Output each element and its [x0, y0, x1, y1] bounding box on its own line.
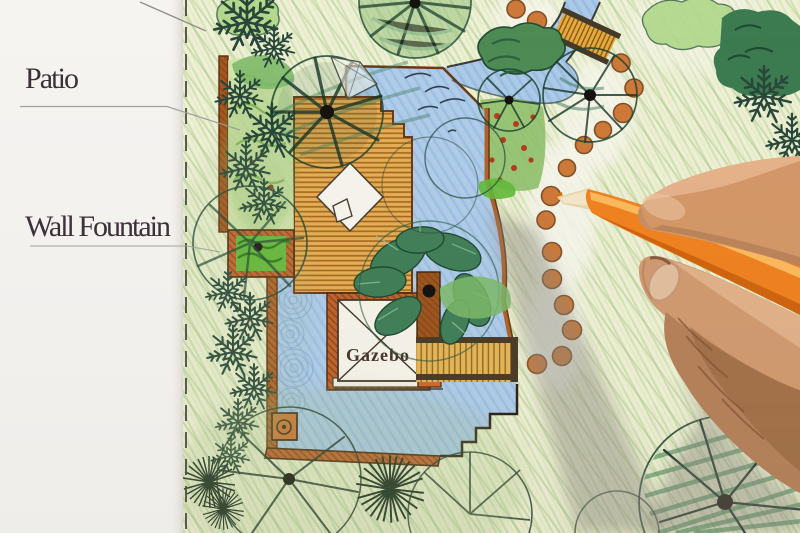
svg-text:Wall Fountain: Wall Fountain — [25, 210, 171, 243]
svg-text:Patio: Patio — [25, 62, 79, 95]
